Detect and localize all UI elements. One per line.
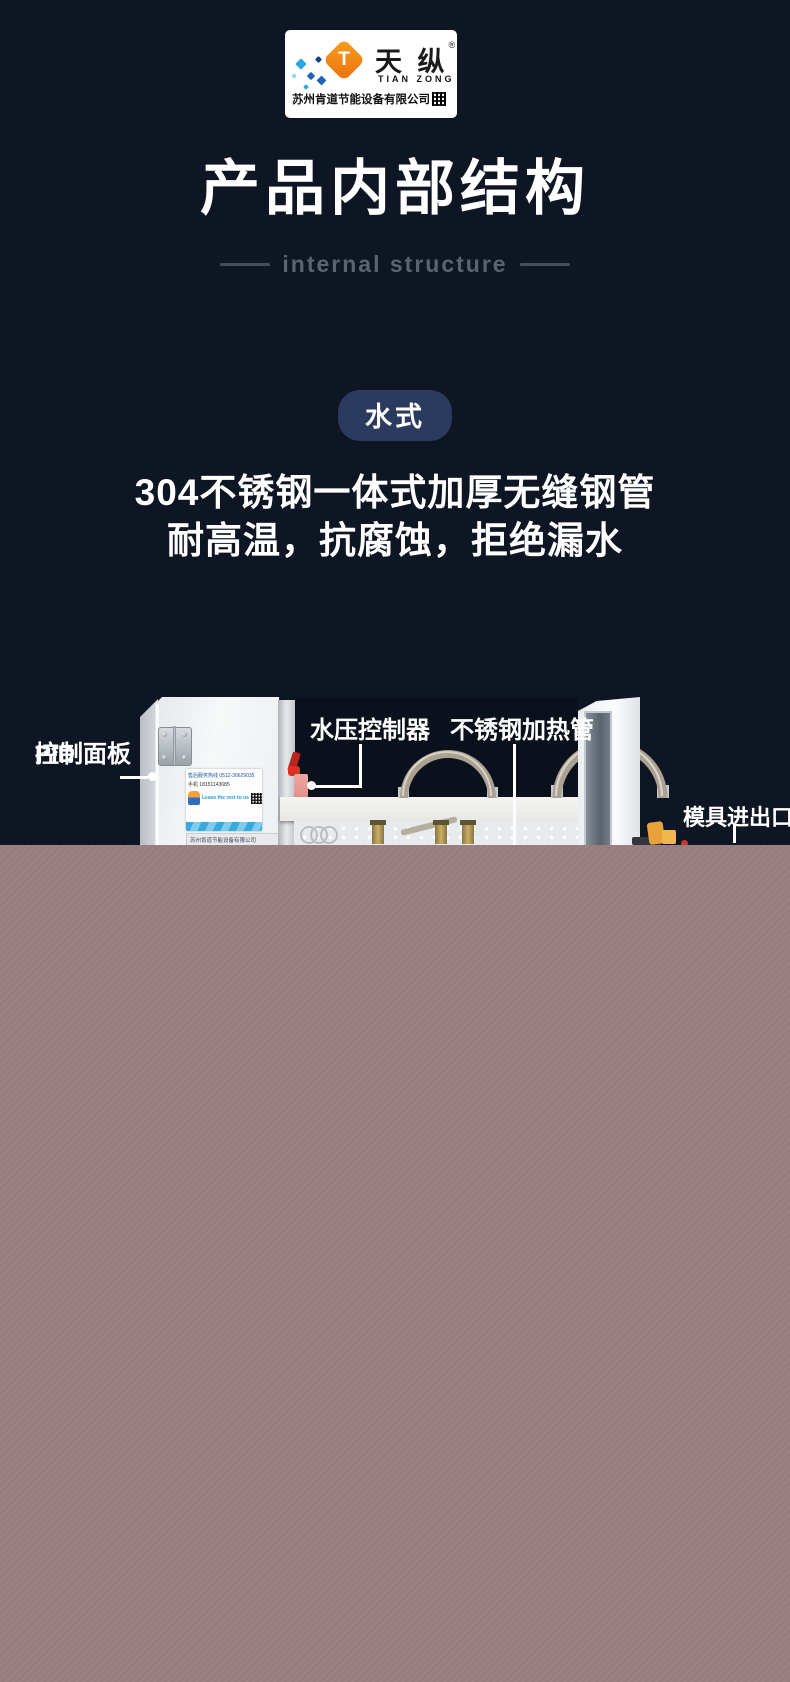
logo-dot-icon: [307, 72, 315, 80]
hinge-screw: [182, 755, 187, 760]
callout-heating-tube: 不锈钢加热管: [450, 710, 594, 745]
subtitle-row: internal structure: [0, 251, 790, 278]
brand-initial: T: [329, 45, 359, 75]
mascot-icon: [188, 791, 200, 805]
callout-line-pid: [120, 776, 148, 779]
coiled-tube: [320, 826, 338, 844]
logo-dot-icon: [315, 56, 322, 63]
subtitle-dash-right: [520, 263, 570, 266]
callout-water-pressure: 水压控制器: [310, 710, 430, 745]
logo-dot-icon: [291, 73, 297, 79]
company-plate-text: 苏州肯道节能设备有限公司: [190, 836, 256, 844]
type-badge: 水式: [338, 390, 452, 441]
registered-trademark: ®: [449, 40, 456, 50]
sticker-qr-code-icon: [251, 793, 262, 804]
brand-name-cn: 天 纵: [375, 47, 449, 77]
hinge-screw: [162, 732, 167, 737]
logo-dot-icon: [317, 76, 327, 86]
brass-fitting: [435, 823, 447, 844]
callout-line-heating-tube: [513, 744, 516, 845]
description-line-1: 304不锈钢一体式加厚无缝钢管: [0, 462, 790, 516]
product-detail-page: T 天 纵® TIAN ZONG 苏州肯道节能设备有限公司 产品内部结构 int…: [0, 0, 790, 1682]
callout-line-water-vertical: [359, 744, 362, 788]
sticker-hotline: 售后服务热线 0512-36629035: [188, 773, 260, 780]
sticker-mobile: 手机 18151143685: [188, 782, 260, 789]
brass-fitting: [372, 823, 384, 844]
callout-dot-water: [307, 781, 316, 790]
callout-dot-pid: [148, 772, 157, 781]
service-sticker: 售后服务热线 0512-36629035 手机 18151143685 Leav…: [186, 769, 262, 831]
sticker-middle-row: Leave the rest to us: [188, 791, 260, 805]
brand-name-en: TIAN ZONG: [378, 74, 455, 84]
internal-structure-diagram: 售后服务热线 0512-36629035 手机 18151143685 Leav…: [0, 640, 790, 845]
logo-dot-icon: [303, 84, 309, 90]
mold-port-fitting: [662, 830, 676, 844]
callout-line-water-horizontal: [312, 785, 362, 788]
subtitle-dash-left: [220, 263, 270, 266]
brand-mark-icon: T: [323, 39, 365, 81]
hinge-screw: [162, 755, 167, 760]
sticker-stripe-band: [186, 822, 262, 831]
door-hinge: [158, 727, 192, 766]
logo-dot-icon: [295, 58, 306, 69]
callout-mold-ports: 模具进出口: [683, 800, 790, 832]
description-line-2: 耐高温，抗腐蚀，拒绝漏水: [0, 510, 790, 564]
company-name-row: 苏州肯道节能设备有限公司: [292, 91, 452, 107]
subtitle-text: internal structure: [282, 251, 507, 278]
callout-pid-line2: 控制面板: [35, 741, 131, 769]
callout-line-mold-ports: [733, 824, 736, 843]
sticker-slogan: Leave the rest to us: [202, 795, 249, 801]
hinge-screw: [182, 732, 187, 737]
company-name: 苏州肯道节能设备有限公司: [292, 91, 430, 107]
brass-fitting: [462, 823, 474, 844]
brand-logo: T 天 纵® TIAN ZONG 苏州肯道节能设备有限公司: [285, 30, 457, 118]
page-title: 产品内部结构: [0, 140, 790, 227]
image-bottom-area: [0, 845, 790, 1682]
qr-code-icon: [432, 92, 446, 106]
